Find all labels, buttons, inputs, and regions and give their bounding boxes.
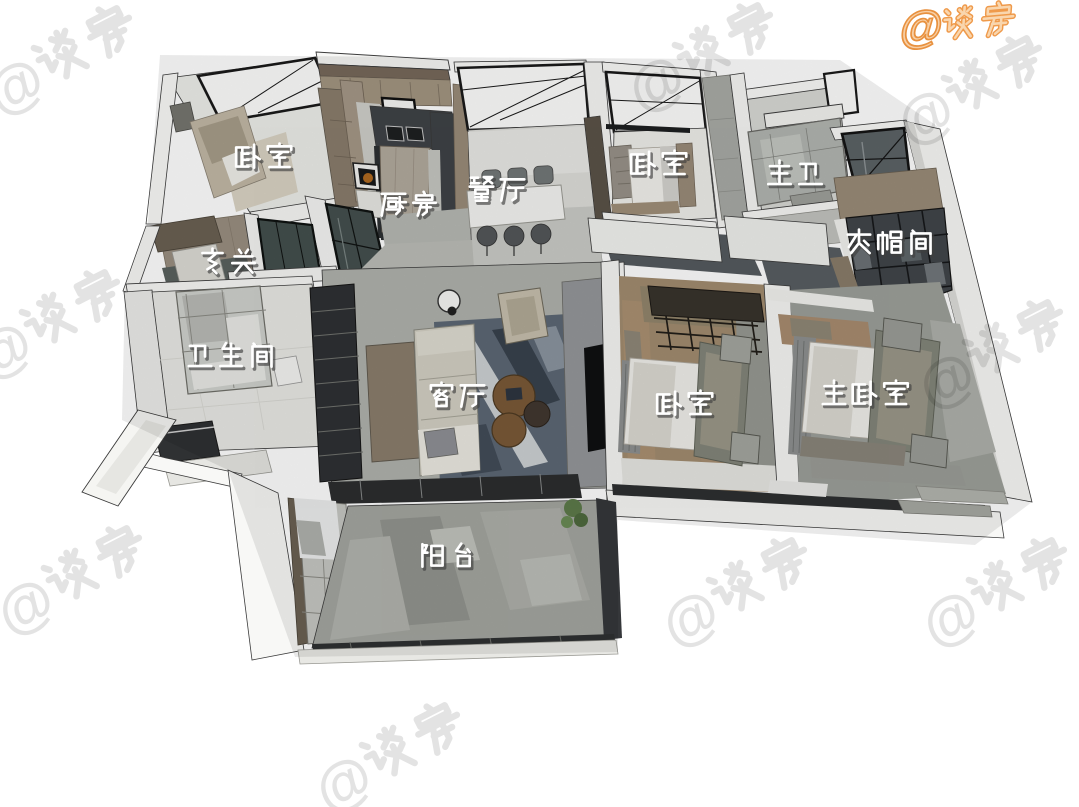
svg-text:@: @ (898, 1, 944, 54)
